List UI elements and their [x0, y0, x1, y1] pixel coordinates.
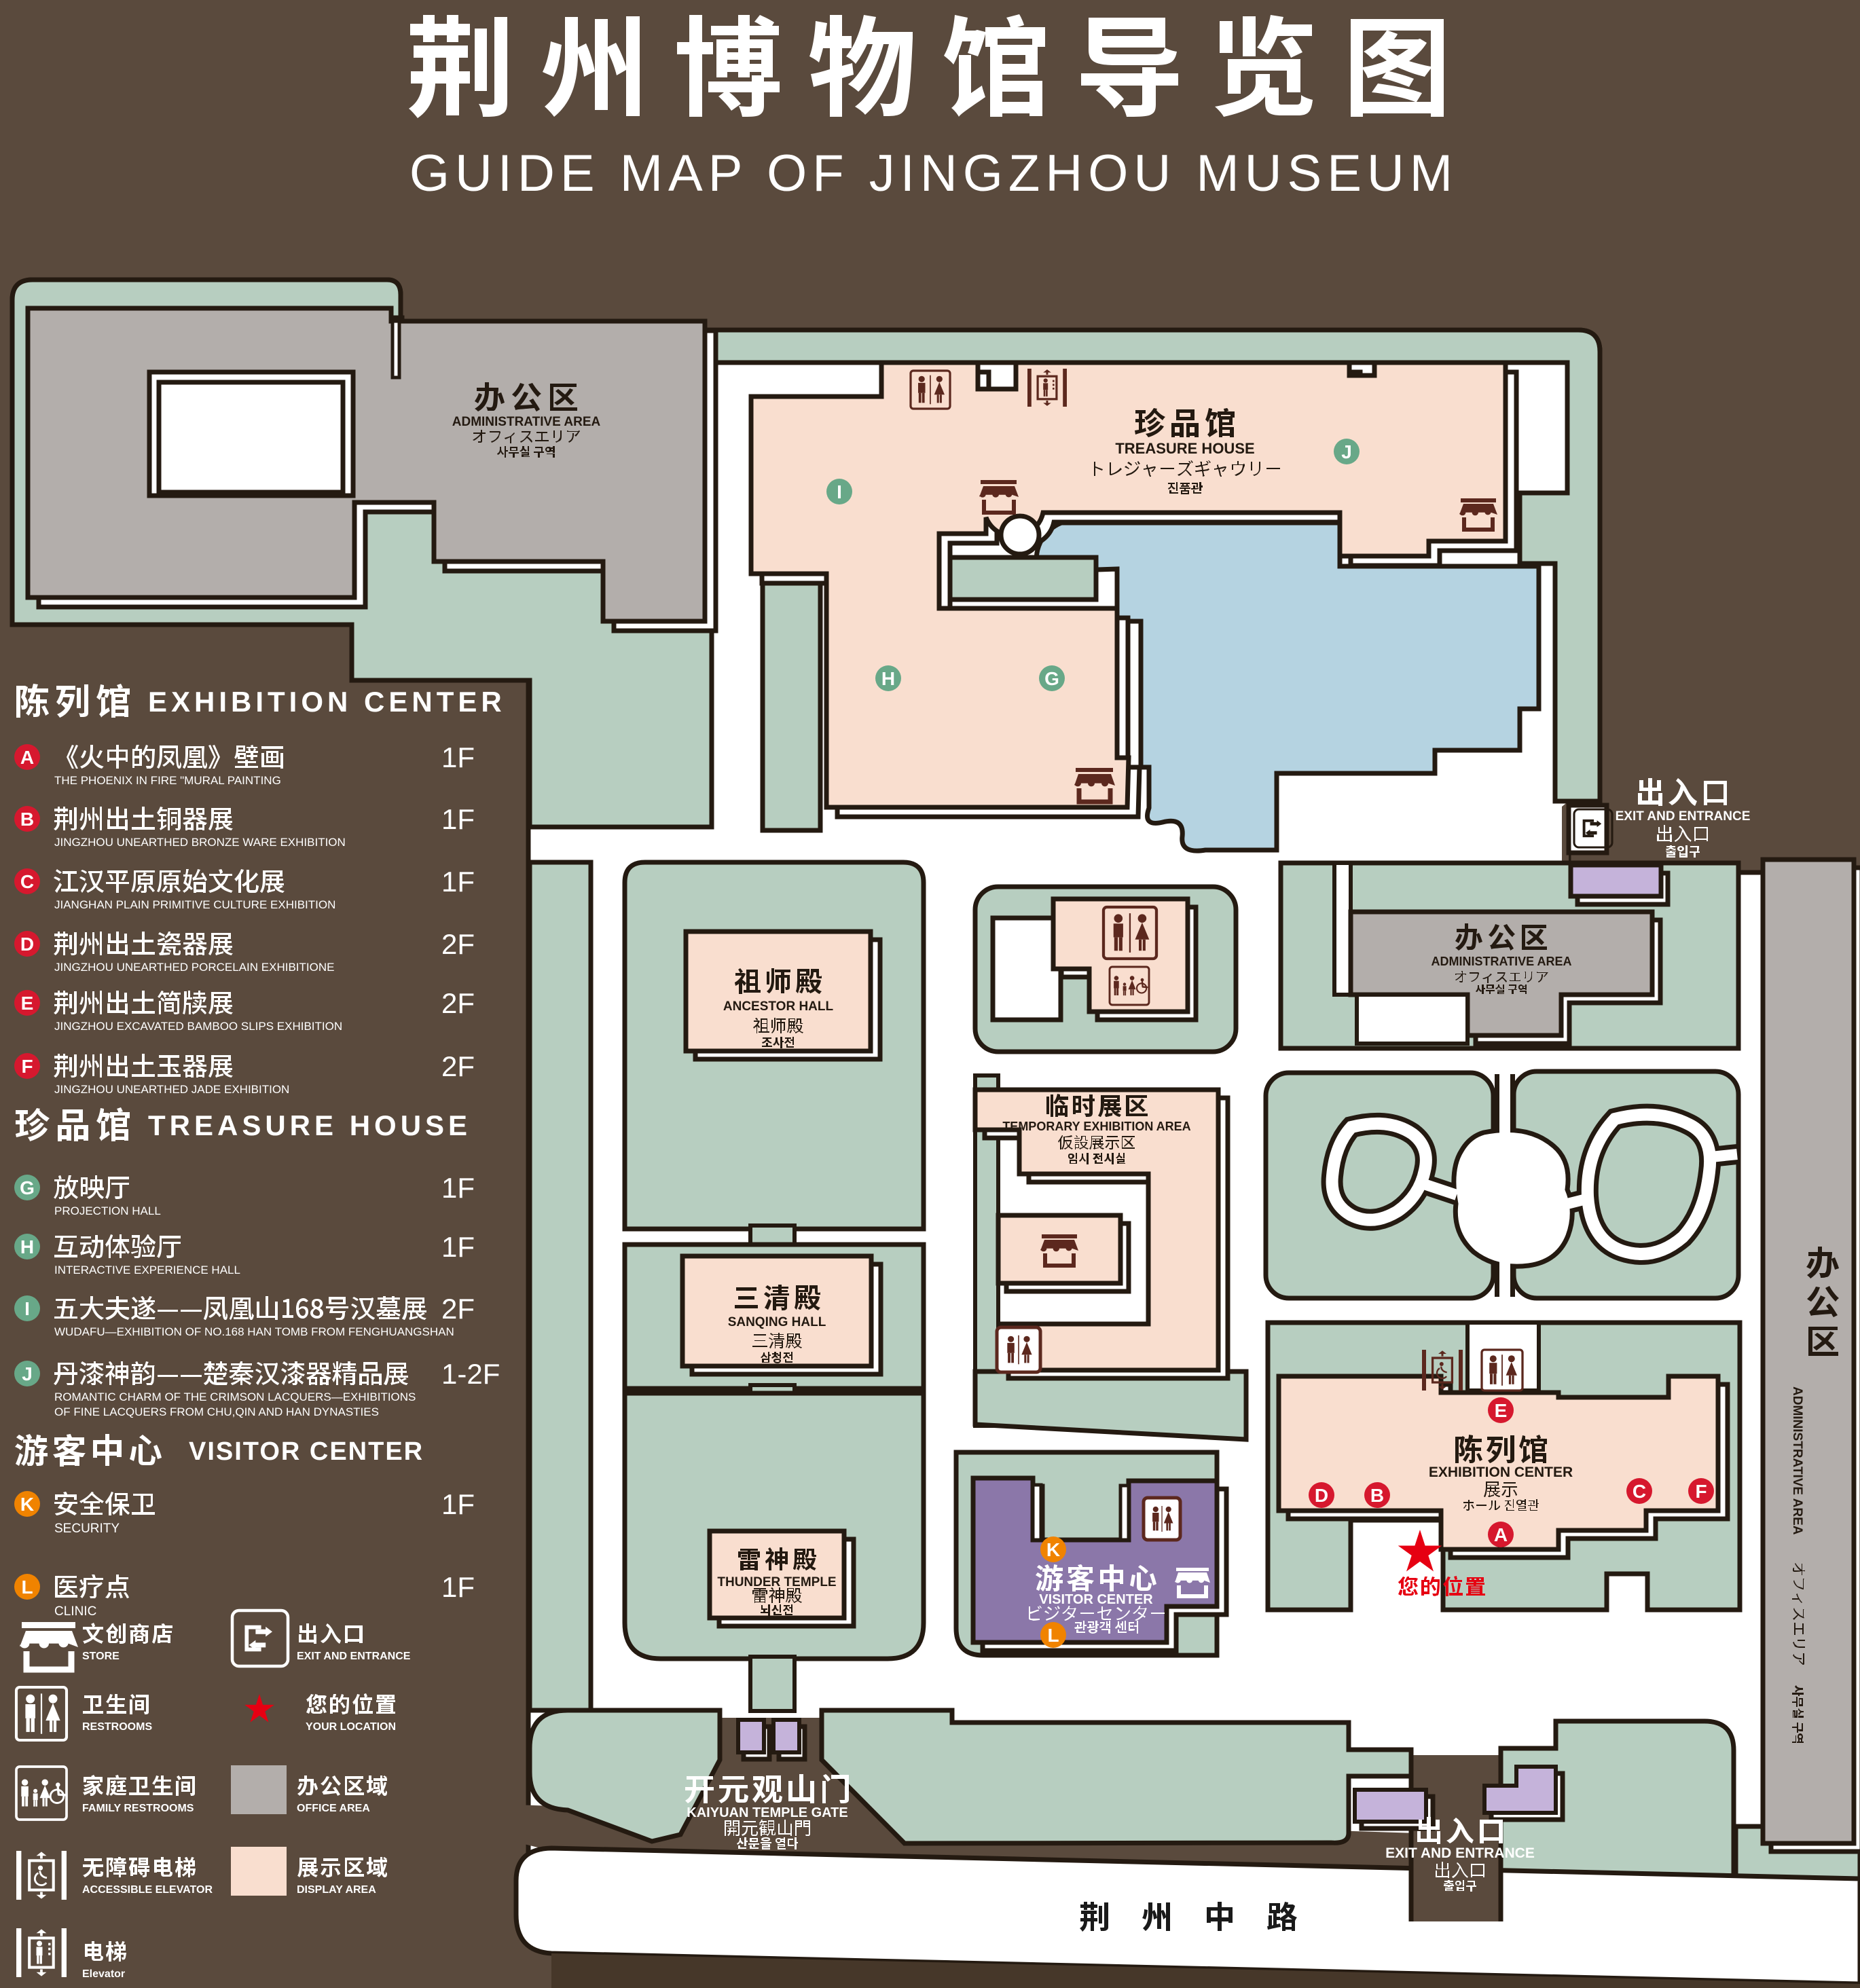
svg-text:JINGZHOU EXCAVATED BAMBOO SLIP: JINGZHOU EXCAVATED BAMBOO SLIPS EXHIBITI…	[54, 1020, 342, 1033]
svg-text:JIANGHAN PLAIN PRIMITIVE CULTU: JIANGHAN PLAIN PRIMITIVE CULTURE EXHIBIT…	[54, 898, 335, 911]
svg-text:CLINIC: CLINIC	[54, 1604, 96, 1619]
svg-text:B: B	[1370, 1485, 1384, 1506]
svg-text:INTERACTIVE EXPERIENCE HALL: INTERACTIVE EXPERIENCE HALL	[54, 1264, 240, 1276]
svg-text:TREASURE HOUSE: TREASURE HOUSE	[1115, 440, 1254, 457]
svg-text:JINGZHOU UNEARTHED JADE EXHIBI: JINGZHOU UNEARTHED JADE EXHIBITION	[54, 1083, 289, 1096]
svg-text:WUDAFU—EXHIBITION OF NO.168 HA: WUDAFU—EXHIBITION OF NO.168 HAN TOMB FRO…	[54, 1325, 454, 1338]
svg-text:TEMPORARY EXHIBITION AREA: TEMPORARY EXHIBITION AREA	[1002, 1120, 1190, 1133]
svg-text:THE PHOENIX IN FIRE "MURAL PAI: THE PHOENIX IN FIRE "MURAL PAINTING	[54, 774, 281, 787]
svg-text:A: A	[1494, 1524, 1508, 1545]
svg-text:EXHIBITION CENTER: EXHIBITION CENTER	[148, 686, 506, 718]
svg-text:OF FINE LACQUERS FROM CHU,QIN: OF FINE LACQUERS FROM CHU,QIN AND HAN DY…	[54, 1405, 379, 1418]
svg-text:ADMINISTRATIVE AREA: ADMINISTRATIVE AREA	[1790, 1386, 1804, 1535]
svg-text:OFFICE AREA: OFFICE AREA	[297, 1803, 370, 1814]
svg-text:E: E	[1495, 1400, 1508, 1421]
svg-text:C: C	[1633, 1481, 1646, 1502]
svg-text:TREASURE HOUSE: TREASURE HOUSE	[148, 1109, 471, 1141]
svg-text:ADMINISTRATIVE AREA: ADMINISTRATIVE AREA	[1432, 955, 1572, 968]
svg-text:ADMINISTRATIVE AREA: ADMINISTRATIVE AREA	[452, 415, 601, 429]
svg-text:L: L	[21, 1577, 33, 1598]
svg-text:D: D	[20, 934, 34, 955]
svg-text:L: L	[1047, 1625, 1059, 1646]
svg-text:EXHIBITION CENTER: EXHIBITION CENTER	[1429, 1465, 1573, 1480]
svg-text:1F: 1F	[441, 741, 475, 773]
svg-text:B: B	[20, 809, 34, 830]
svg-text:ACCESSIBLE ELEVATOR: ACCESSIBLE ELEVATOR	[82, 1884, 213, 1896]
svg-text:VISITOR CENTER: VISITOR CENTER	[189, 1437, 424, 1466]
svg-text:H: H	[881, 668, 895, 689]
svg-text:1F: 1F	[441, 803, 475, 835]
svg-text:JINGZHOU UNEARTHED BRONZE WARE: JINGZHOU UNEARTHED BRONZE WARE EXHIBITIO…	[54, 836, 346, 849]
svg-text:K: K	[1046, 1539, 1060, 1560]
svg-text:1-2F: 1-2F	[441, 1358, 500, 1390]
svg-text:J: J	[22, 1363, 33, 1384]
svg-text:RESTROOMS: RESTROOMS	[82, 1721, 152, 1733]
svg-text:YOUR LOCATION: YOUR LOCATION	[306, 1721, 396, 1733]
svg-text:ANCESTOR HALL: ANCESTOR HALL	[723, 999, 834, 1014]
svg-text:2F: 2F	[441, 1050, 475, 1082]
svg-text:DISPLAY AREA: DISPLAY AREA	[297, 1884, 376, 1896]
svg-text:J: J	[1341, 441, 1352, 462]
svg-text:EXIT AND ENTRANCE: EXIT AND ENTRANCE	[297, 1651, 411, 1662]
svg-text:2F: 2F	[441, 987, 475, 1019]
svg-text:I: I	[837, 481, 842, 502]
svg-text:D: D	[1315, 1485, 1328, 1506]
svg-text:A: A	[20, 747, 34, 768]
svg-text:1F: 1F	[441, 1571, 475, 1603]
svg-text:SECURITY: SECURITY	[54, 1522, 120, 1536]
svg-text:2F: 2F	[441, 1293, 475, 1325]
svg-text:2F: 2F	[441, 928, 475, 960]
svg-text:K: K	[20, 1494, 34, 1515]
svg-text:1F: 1F	[441, 1231, 475, 1263]
svg-text:1F: 1F	[441, 1488, 475, 1520]
svg-text:G: G	[1044, 668, 1059, 689]
svg-text:G: G	[20, 1177, 35, 1198]
svg-text:ROMANTIC CHARM OF THE CRIMSON: ROMANTIC CHARM OF THE CRIMSON LACQUERS—E…	[54, 1391, 416, 1403]
svg-text:F: F	[1695, 1481, 1707, 1502]
svg-text:SANQING HALL: SANQING HALL	[728, 1315, 826, 1329]
svg-text:E: E	[21, 993, 34, 1014]
svg-text:PROJECTION HALL: PROJECTION HALL	[54, 1204, 161, 1217]
svg-text:1F: 1F	[441, 866, 475, 898]
svg-text:EXIT AND ENTRANCE: EXIT AND ENTRANCE	[1616, 809, 1751, 824]
svg-text:STORE: STORE	[82, 1651, 120, 1662]
svg-text:GUIDE MAP OF JINGZHOU MUSEUM: GUIDE MAP OF JINGZHOU MUSEUM	[409, 145, 1458, 202]
svg-text:H: H	[20, 1236, 34, 1257]
svg-text:I: I	[24, 1298, 30, 1319]
svg-text:Elevator: Elevator	[82, 1968, 125, 1980]
svg-text:JINGZHOU UNEARTHED PORCELAIN E: JINGZHOU UNEARTHED PORCELAIN EXHIBITIONE	[54, 961, 334, 974]
svg-text:KAIYUAN TEMPLE GATE: KAIYUAN TEMPLE GATE	[687, 1805, 847, 1820]
svg-text:1F: 1F	[441, 1172, 475, 1204]
svg-text:F: F	[21, 1056, 33, 1077]
svg-text:FAMILY RESTROOMS: FAMILY RESTROOMS	[82, 1803, 194, 1814]
svg-text:C: C	[20, 871, 34, 892]
svg-text:VISITOR CENTER: VISITOR CENTER	[1039, 1592, 1153, 1607]
svg-text:EXIT AND ENTRANCE: EXIT AND ENTRANCE	[1385, 1845, 1535, 1861]
svg-text:THUNDER TEMPLE: THUNDER TEMPLE	[717, 1575, 836, 1589]
